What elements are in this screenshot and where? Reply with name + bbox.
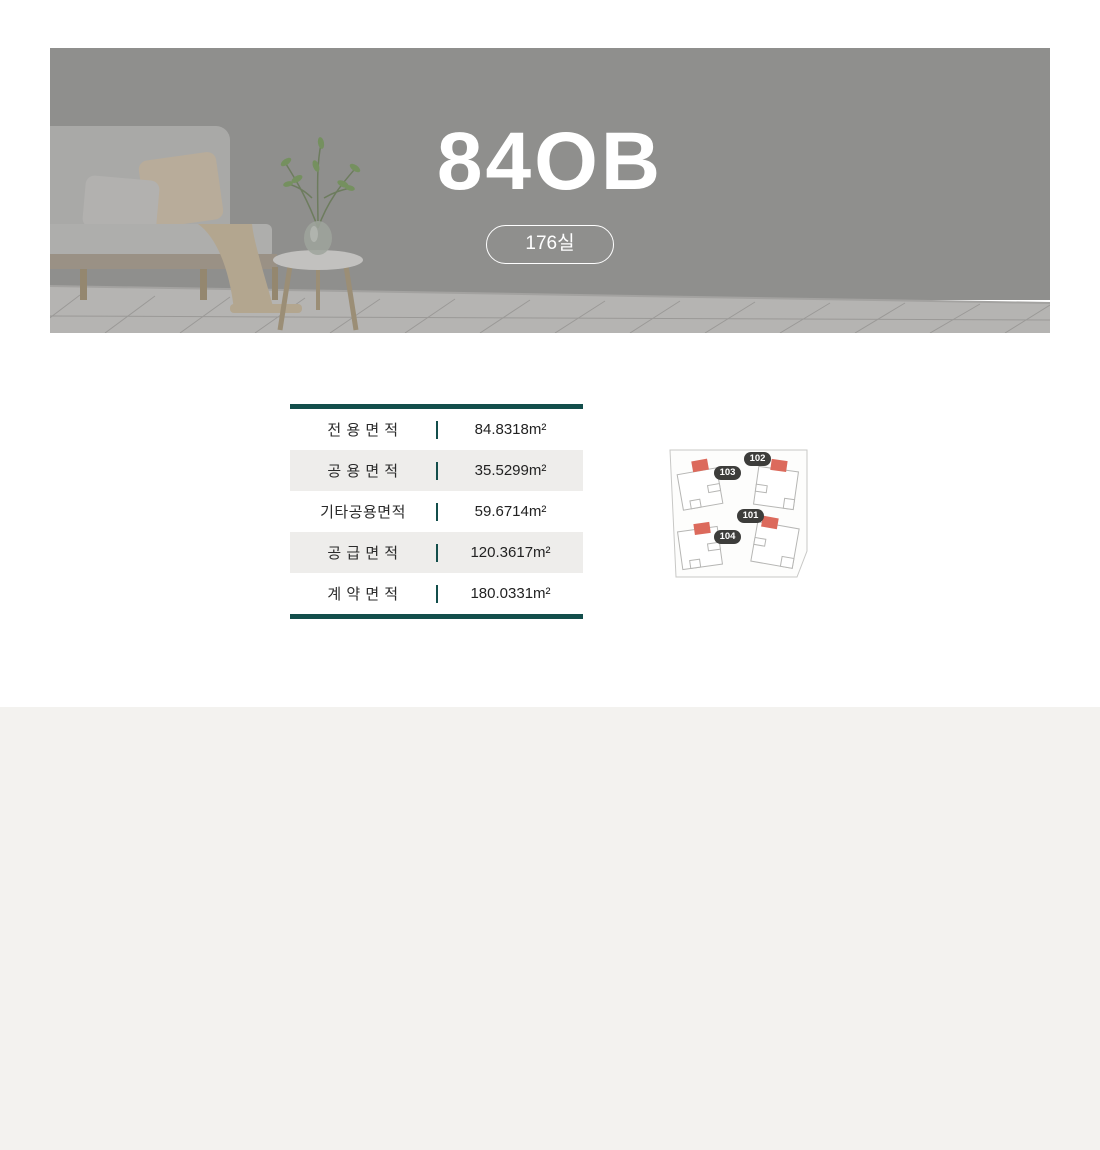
unit-badge-104: 104 xyxy=(714,530,741,544)
floor-plan-section: 발코니3 침실3 침실2 드레스룸 침실1 피난공간 욕실2 발코니1 욕실1 … xyxy=(0,707,1100,1150)
row-value: 84.8318m² xyxy=(438,421,583,438)
page: 84OB 176실 전 용 면 적 84.8318m² 공 용 면 적 35.5… xyxy=(0,0,1100,1150)
unit-badge-103: 103 xyxy=(714,466,741,480)
page-title: 84OB xyxy=(437,121,663,203)
row-value: 59.6714m² xyxy=(438,503,583,520)
unit-footprint-102 xyxy=(754,466,799,509)
table-row: 공 용 면 적 35.5299m² xyxy=(290,450,583,491)
row-label: 전 용 면 적 xyxy=(290,419,436,440)
row-label: 공 용 면 적 xyxy=(290,460,436,481)
row-value: 120.3617m² xyxy=(438,544,583,561)
row-value: 35.5299m² xyxy=(438,462,583,479)
unit-badge-101: 101 xyxy=(737,509,764,523)
table-bottom-border xyxy=(290,614,583,619)
unit-marker xyxy=(770,459,787,472)
row-value: 180.0331m² xyxy=(438,585,583,602)
unit-count-badge: 176실 xyxy=(486,225,613,264)
hero-overlay: 84OB 176실 xyxy=(50,48,1050,333)
unit-marker xyxy=(693,522,710,535)
row-label: 공 급 면 적 xyxy=(290,542,436,563)
unit-location-map: 102 103 101 104 xyxy=(664,443,816,583)
table-row: 전 용 면 적 84.8318m² xyxy=(290,409,583,450)
table-row: 기타공용면적 59.6714m² xyxy=(290,491,583,532)
row-label: 계 약 면 적 xyxy=(290,583,436,604)
table-row: 계 약 면 적 180.0331m² xyxy=(290,573,583,614)
row-label: 기타공용면적 xyxy=(290,501,436,522)
area-table: 전 용 면 적 84.8318m² 공 용 면 적 35.5299m² 기타공용… xyxy=(290,404,583,619)
hero-banner: 84OB 176실 xyxy=(50,48,1050,333)
table-row: 공 급 면 적 120.3617m² xyxy=(290,532,583,573)
unit-badge-102: 102 xyxy=(744,452,771,466)
